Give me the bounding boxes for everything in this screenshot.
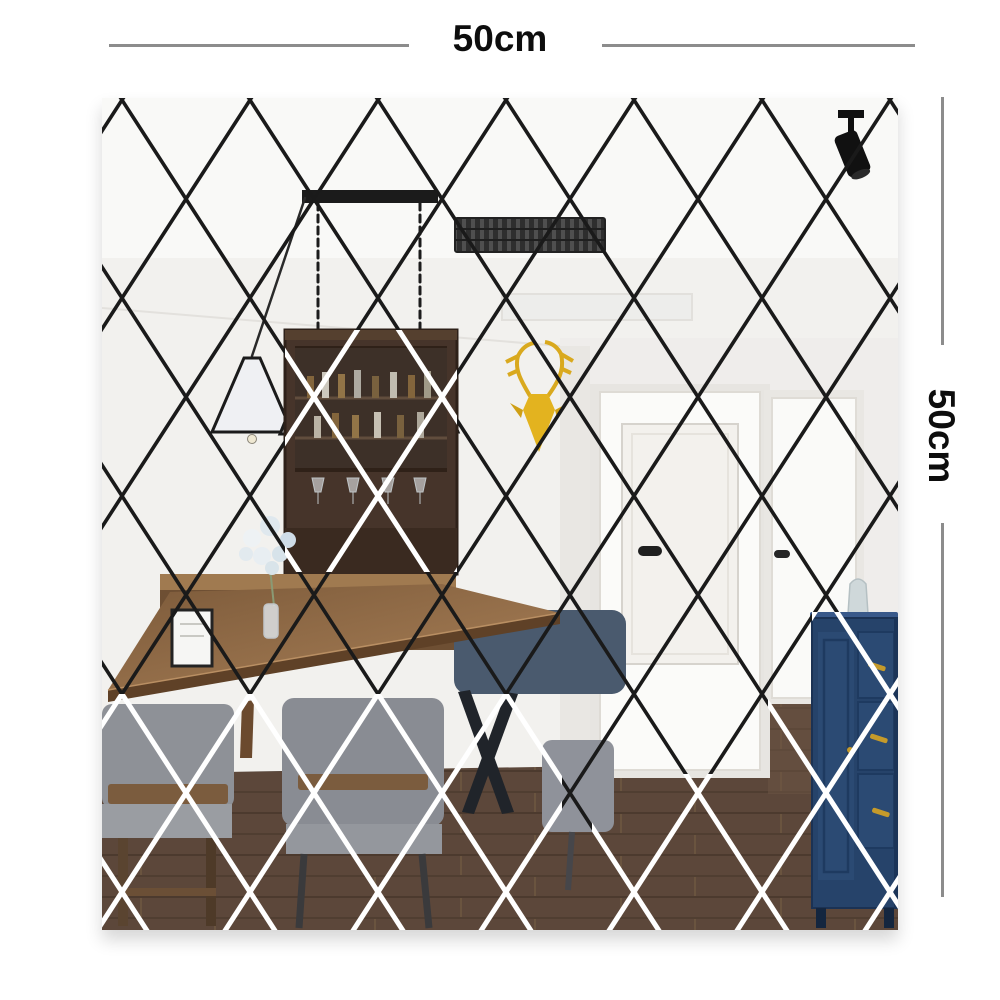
right-dimension-line-top: [941, 97, 944, 345]
top-dimension-line-left: [109, 44, 409, 47]
page: 50cm 50cm: [0, 0, 1000, 1000]
top-dimension-line-right: [602, 44, 915, 47]
top-dimension-label: 50cm: [432, 18, 568, 60]
right-dimension-line-bottom: [941, 523, 944, 897]
product-photo: [102, 98, 898, 930]
right-dimension-label: 50cm: [920, 389, 962, 484]
